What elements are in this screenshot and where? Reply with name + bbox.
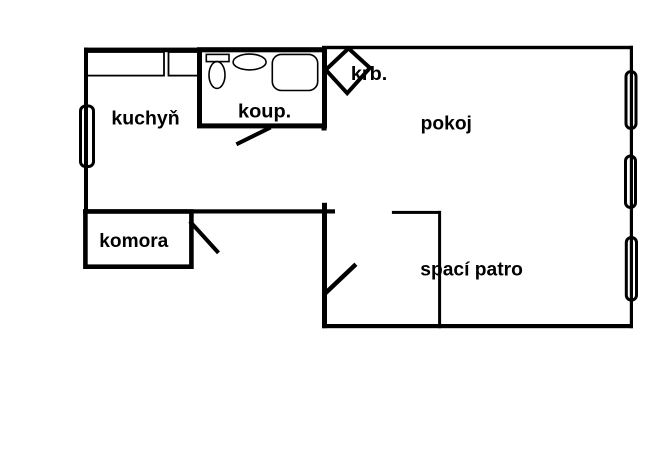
svg-text:koup.: koup.: [238, 101, 291, 122]
svg-text:komora: komora: [99, 231, 168, 252]
svg-text:spací patro: spací patro: [420, 259, 523, 280]
svg-text:pokoj: pokoj: [421, 114, 472, 135]
svg-text:kuchyň: kuchyň: [111, 109, 179, 130]
svg-text:krb.: krb.: [351, 64, 387, 85]
